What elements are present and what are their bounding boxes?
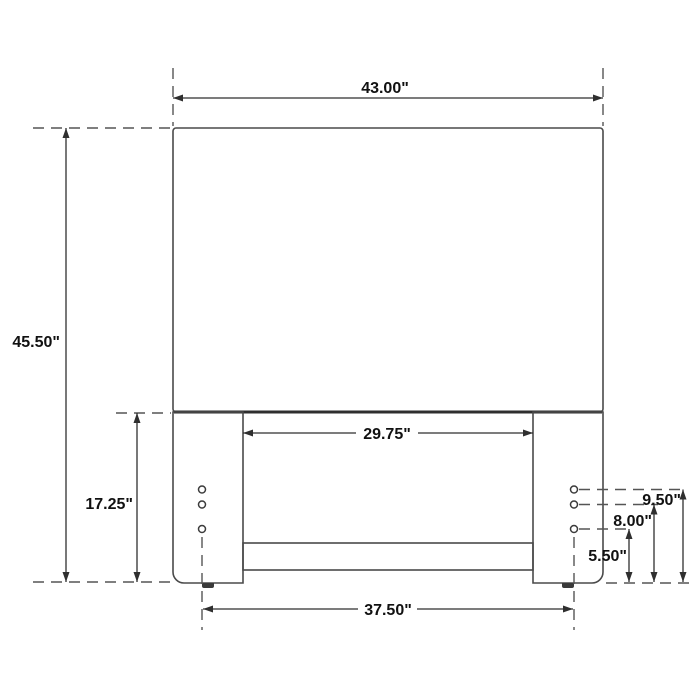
left-foot-glide <box>202 583 214 588</box>
dim-foot-span-label: 37.50" <box>364 602 412 619</box>
dim-overall-height-label: 45.50" <box>12 334 60 351</box>
right-leg-hole-middle <box>571 501 578 508</box>
left-leg-hole-middle <box>199 501 206 508</box>
dim-hole-bottom-label: 5.50" <box>588 548 627 565</box>
dim-leg-height-label: 17.25" <box>85 496 133 513</box>
headboard-technical-drawing: 43.00" 45.50" 17.25" 29.75" 37.50" 9.50"… <box>0 0 700 700</box>
left-leg-hole-top <box>199 486 206 493</box>
left-leg-hole-bottom <box>199 526 206 533</box>
left-leg <box>173 412 243 583</box>
right-foot-glide <box>562 583 574 588</box>
dim-hole-top-label: 9.50" <box>642 492 681 509</box>
right-leg-hole-bottom <box>571 526 578 533</box>
dim-hole-middle-label: 8.00" <box>613 513 652 530</box>
bottom-rail <box>243 543 533 570</box>
headboard-panel <box>173 128 603 412</box>
drawing-canvas: 43.00" 45.50" 17.25" 29.75" 37.50" 9.50"… <box>0 0 700 700</box>
dim-overall-width-label: 43.00" <box>361 80 409 97</box>
dim-between-legs-label: 29.75" <box>363 426 411 443</box>
right-leg-hole-top <box>571 486 578 493</box>
